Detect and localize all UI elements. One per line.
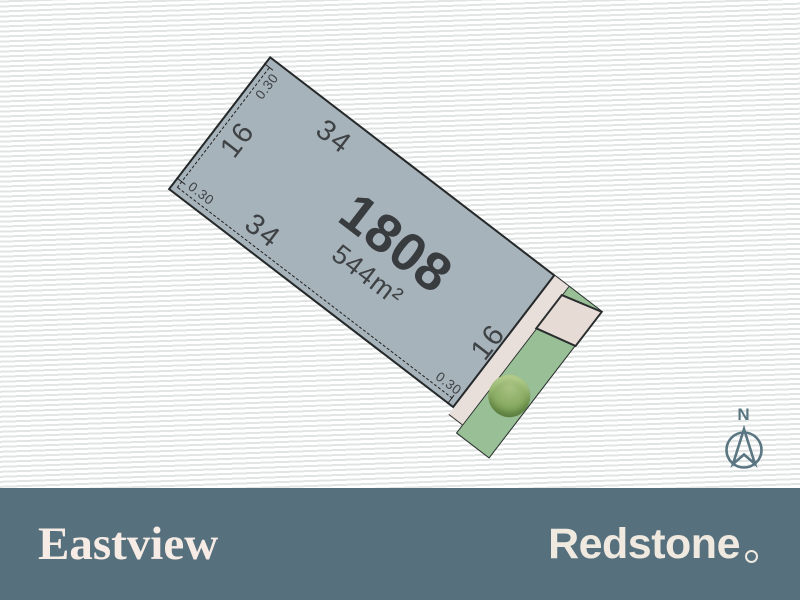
developer-name: Redstone [548, 520, 740, 569]
developer-logo: Redstone [548, 520, 758, 569]
compass-north-label: N [720, 406, 768, 423]
footer-bar: Eastview Redstone [0, 488, 800, 600]
compass-rose-icon [720, 423, 768, 475]
estate-logo: Eastview [38, 517, 218, 571]
trademark-circle-icon [745, 550, 758, 563]
compass: N [720, 406, 768, 482]
